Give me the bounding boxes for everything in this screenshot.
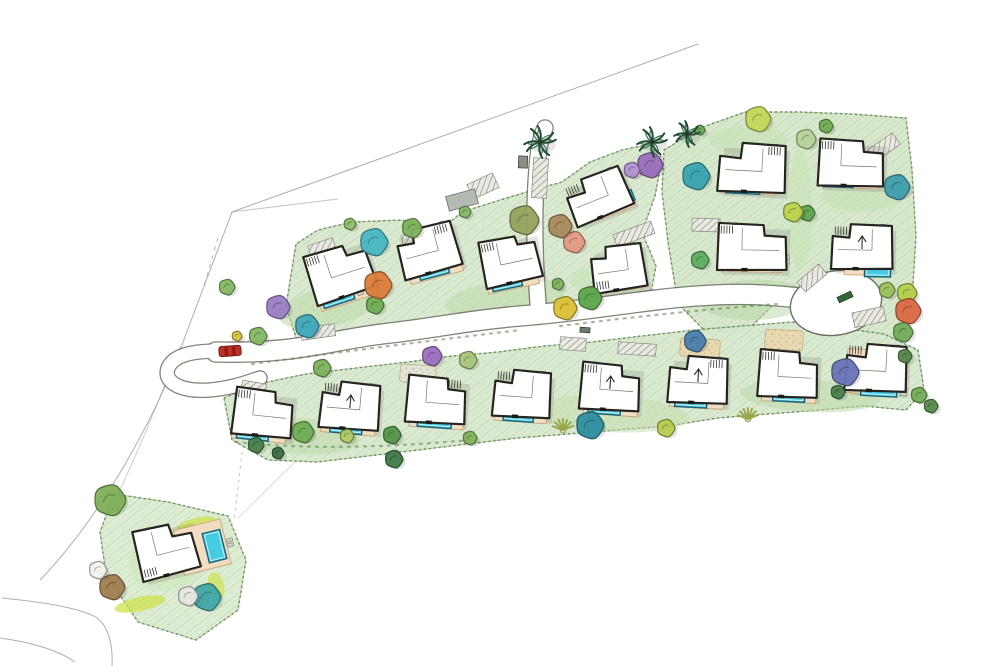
tree-canopy	[898, 349, 911, 363]
step-line	[506, 372, 507, 380]
tree-canopy	[250, 327, 267, 344]
step-line	[585, 364, 586, 372]
driveway-hatch	[560, 337, 587, 352]
step-line	[588, 364, 589, 372]
step-line	[591, 365, 592, 373]
tree-icon	[95, 485, 128, 516]
tree-canopy	[579, 287, 602, 310]
window-mark	[880, 224, 885, 226]
window-mark	[369, 383, 374, 386]
tree-canopy	[293, 422, 314, 443]
tree-canopy	[880, 282, 895, 297]
tree-canopy	[314, 359, 331, 376]
step-line	[460, 381, 461, 389]
gravel-dots	[765, 329, 804, 351]
door-mark	[600, 407, 606, 411]
tree-canopy	[95, 485, 126, 516]
step-line	[593, 365, 594, 373]
tree-canopy	[912, 387, 927, 402]
villa-15	[667, 354, 732, 409]
tree-canopy	[459, 206, 471, 218]
tree-icon	[220, 279, 238, 296]
tree-canopy	[267, 296, 290, 319]
tree-canopy	[625, 162, 640, 177]
tree-canopy	[831, 385, 844, 399]
tree-icon	[896, 299, 924, 325]
boundary-line	[232, 199, 338, 212]
tree-canopy	[924, 399, 937, 413]
tree-canopy	[296, 315, 319, 338]
window-mark	[594, 362, 599, 365]
tree-canopy	[552, 278, 564, 290]
tree-canopy	[692, 251, 709, 268]
driveway-hatch	[618, 342, 657, 357]
tree-canopy	[797, 130, 816, 149]
window-mark	[717, 357, 722, 360]
step-line	[457, 380, 458, 388]
step-line	[452, 380, 453, 388]
boundary-line	[2, 598, 112, 666]
tree-canopy	[386, 450, 403, 467]
tree-canopy	[272, 447, 284, 459]
tree-canopy	[460, 351, 477, 368]
door-mark	[252, 433, 258, 437]
masterplan-svg	[0, 0, 1000, 666]
tree-canopy	[658, 419, 675, 436]
masterplan-page	[0, 0, 1000, 666]
window-mark	[540, 371, 545, 374]
window-mark	[772, 349, 777, 352]
villa-11	[318, 379, 385, 436]
step-line	[504, 372, 505, 380]
tree-icon	[924, 399, 940, 414]
tree-canopy	[463, 431, 476, 445]
tree-canopy	[403, 219, 422, 238]
tree-canopy	[340, 429, 353, 443]
door-mark	[688, 401, 694, 405]
window-mark	[833, 138, 838, 141]
tree-canopy	[894, 323, 913, 342]
door-mark	[426, 420, 432, 424]
door-mark	[841, 184, 847, 188]
step-line	[449, 380, 450, 388]
villa-13	[492, 368, 556, 424]
window-mark	[732, 222, 737, 224]
palm-trunk	[685, 132, 689, 136]
door-mark	[866, 389, 872, 393]
palm-trunk	[538, 140, 542, 144]
step-line	[454, 380, 455, 388]
tree-canopy	[232, 331, 242, 341]
step-line	[498, 371, 499, 379]
villa-9	[831, 223, 897, 277]
tree-canopy	[784, 203, 803, 222]
tree-canopy	[819, 119, 832, 133]
bench	[580, 327, 590, 333]
villa-6	[717, 141, 790, 199]
boundary-line	[204, 238, 218, 286]
tree-canopy	[896, 299, 921, 324]
step-line	[501, 372, 502, 380]
door-mark	[778, 395, 784, 399]
tree-icon	[894, 323, 916, 343]
tree-canopy	[179, 587, 198, 606]
door-mark	[741, 189, 747, 193]
parked-car	[219, 345, 242, 357]
car-windshield	[224, 347, 228, 356]
tree-icon	[746, 107, 774, 133]
door-mark	[741, 268, 747, 272]
tree-icon	[423, 347, 445, 367]
tree-canopy	[90, 561, 107, 578]
villa-8	[717, 222, 790, 275]
driveway-hatch	[531, 158, 548, 199]
step-line	[509, 372, 510, 380]
boundary-line	[186, 212, 232, 334]
bench	[518, 156, 527, 168]
tree-icon	[403, 219, 425, 239]
tree-icon	[386, 450, 406, 469]
villa-12	[405, 374, 471, 430]
step-line	[596, 365, 597, 373]
tree-canopy	[554, 297, 577, 320]
tree-canopy	[384, 426, 401, 443]
window-mark	[773, 144, 778, 147]
tree-canopy	[549, 215, 572, 238]
boundary-line	[234, 438, 244, 518]
palm-trunk	[650, 140, 654, 144]
tree-canopy	[685, 331, 706, 352]
car-rear-window	[232, 346, 236, 355]
tree-canopy	[746, 107, 771, 132]
tree-canopy	[249, 437, 264, 452]
tree-canopy	[220, 279, 235, 294]
gravel-patch	[765, 329, 804, 351]
window-mark	[420, 375, 425, 378]
car-body	[219, 345, 242, 357]
door-mark	[512, 414, 518, 418]
tree-canopy	[423, 347, 442, 366]
boundary-line	[0, 638, 75, 662]
tree-icon	[232, 331, 244, 343]
tree-canopy	[344, 218, 356, 230]
door-mark	[853, 267, 859, 271]
driveway-hatch	[692, 218, 720, 232]
window-mark	[895, 345, 900, 348]
